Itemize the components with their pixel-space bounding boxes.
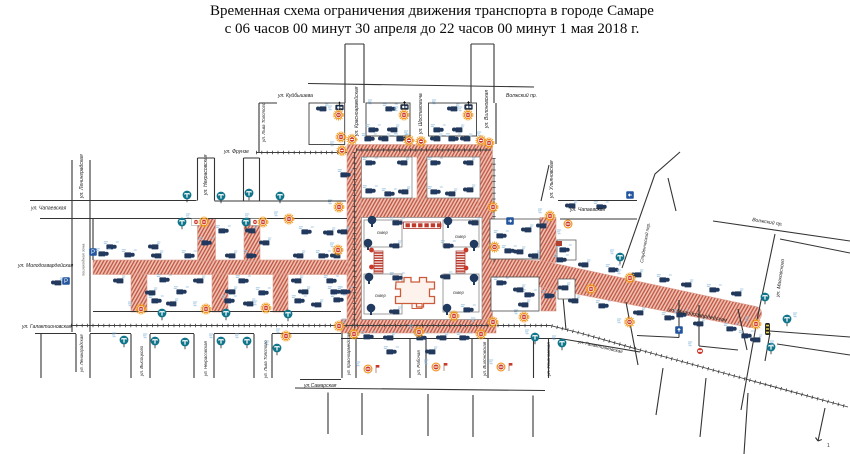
svg-text:ул. Льва Толстого: ул. Льва Толстого	[263, 340, 268, 379]
svg-text:ул. Ленинградская: ул. Ленинградская	[79, 334, 84, 373]
svg-text:ул. Галактионовская: ул. Галактионовская	[21, 324, 72, 330]
svg-text:ул. Молодогвардейская: ул. Молодогвардейская	[17, 262, 74, 269]
svg-text:Студенческий пер.: Студенческий пер.	[638, 222, 651, 263]
svg-text:ул. Ленинградская: ул. Ленинградская	[79, 154, 85, 199]
svg-text:ул. Вилоновская: ул. Вилоновская	[484, 90, 490, 129]
svg-text:ул. Красноармейская: ул. Красноармейская	[353, 86, 360, 137]
svg-text:ул. Куйбышева: ул. Куйбышева	[277, 92, 313, 99]
svg-text:ул. Льва Толстого: ул. Льва Толстого	[261, 102, 266, 143]
svg-text:сквер: сквер	[377, 230, 388, 235]
svg-text:ул. Красноармейская: ул. Красноармейская	[346, 332, 351, 376]
svg-text:ул. Чапаевская: ул. Чапаевская	[569, 207, 606, 213]
svg-text:Волжский пр.: Волжский пр.	[506, 92, 537, 99]
svg-text:ул. Некрасовская: ул. Некрасовская	[203, 341, 208, 377]
svg-text:сквер: сквер	[375, 293, 386, 298]
svg-text:ул. Вилоновская: ул. Вилоновская	[482, 341, 487, 377]
svg-text:ул. Галактионовская: ул. Галактионовская	[577, 339, 624, 354]
svg-text:ул. Ульяновская: ул. Ульяновская	[546, 342, 551, 377]
svg-text:ул. Маяковского: ул. Маяковского	[775, 258, 786, 298]
svg-text:ул. Шостаковича: ул. Шостаковича	[418, 93, 424, 135]
svg-text:Волжский пр.: Волжский пр.	[752, 216, 784, 228]
svg-text:ул.Самарская: ул.Самарская	[303, 383, 337, 389]
svg-text:ул. Ульяновская: ул. Ульяновская	[549, 160, 555, 199]
svg-text:1: 1	[827, 443, 830, 449]
svg-text:ул. Некрасовская: ул. Некрасовская	[203, 154, 209, 196]
svg-text:ул. Фрунзе: ул. Фрунзе	[223, 149, 249, 155]
svg-text:пешеходная зона: пешеходная зона	[81, 243, 86, 276]
svg-text:сквер: сквер	[453, 290, 464, 295]
svg-text:ул. Высоцкого: ул. Высоцкого	[139, 345, 144, 377]
svg-text:сквер: сквер	[455, 234, 466, 239]
svg-text:ул. Рабочая: ул. Рабочая	[416, 350, 421, 376]
svg-text:ул. Чапаевская: ул. Чапаевская	[30, 206, 67, 212]
